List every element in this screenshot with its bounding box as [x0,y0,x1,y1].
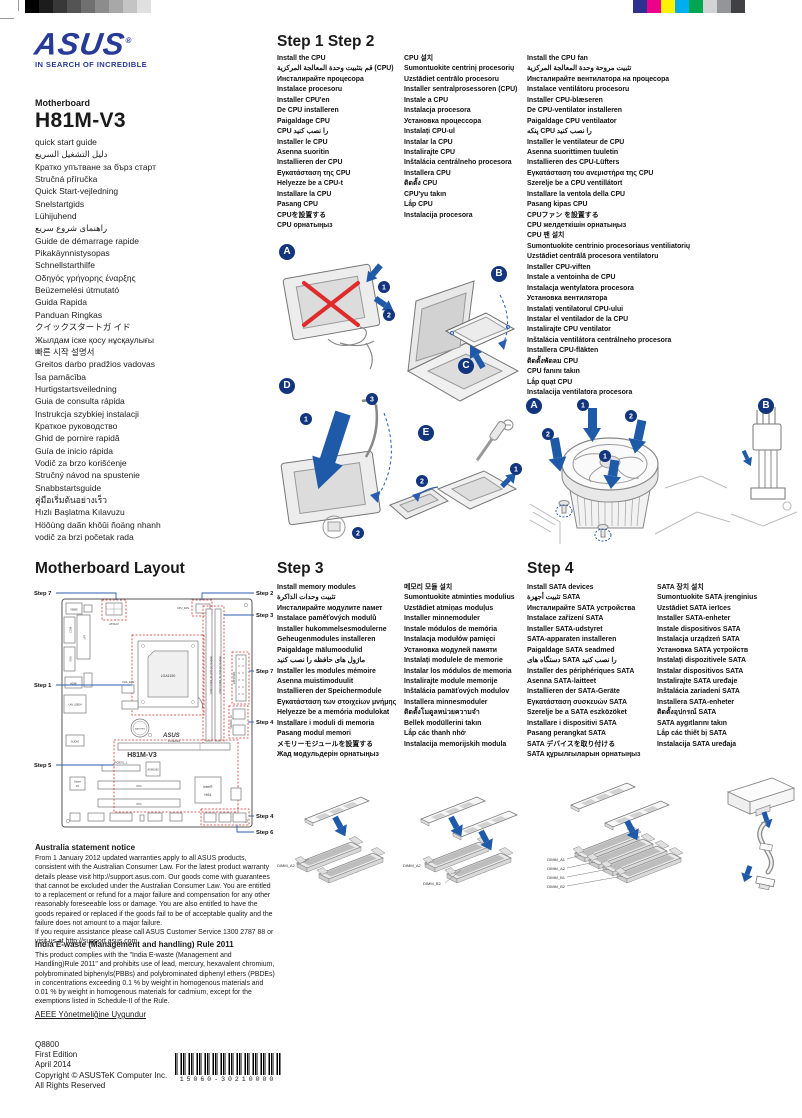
step4-column-1: Install SATA devicesتثبيت أجهزة SATAИнст… [527,583,640,760]
language-title: Hızlı Başlatma Kılavuzu [35,506,161,518]
language-title: Lühijuhend [35,210,161,222]
language-title: 빠른 시작 설명서 [35,346,161,358]
instruction-line: Installer les modules mémoire [277,667,396,677]
instruction-line: Bellek modüllerini takın [404,719,515,729]
instruction-line: Lắp các thanh nhớ [404,729,515,739]
layout-step-label: Step 7 [34,591,51,597]
instruction-line: Installieren der SATA-Geräte [527,687,640,697]
language-title: Vodič za brzo korišćenje [35,457,161,469]
memory-install-diagram: DIMM_A2 DIMM_A2 DIMM_B2 DIMM_A1 DIMM_A2 … [275,775,690,910]
layout-step-label: Step 7 [256,669,273,675]
instruction-line: Install the CPU [277,54,394,64]
step12-title: Step 1 Step 2 [277,33,374,51]
step-number-badge: 1 [300,413,312,425]
step-number-badge: 1 [599,450,611,462]
calibration-swatch [67,0,81,13]
instruction-line: Установка модулей памяти [404,646,515,656]
language-title: Greitos darbo pradžios vadovas [35,358,161,370]
instruction-line: Sumontuokite centrinį procesorių [404,64,517,74]
instruction-line: Instalacja procesora [404,106,517,116]
instruction-line: Installera CPU-fläkten [527,346,690,356]
product-type-label: Motherboard [35,98,90,108]
svg-text:H81M-V3: H81M-V3 [127,752,157,759]
layout-step-label: Step 4 [256,720,274,726]
svg-text:VGA: VGA [69,656,73,662]
instruction-line: CPU орнатыңыз [277,221,394,231]
instruction-line: Pasang perangkat SATA [527,729,640,739]
colophon-line: First Edition [35,1050,167,1060]
calibration-swatch [151,0,165,13]
instruction-line: Uzstādiet atmiņas moduļus [404,604,515,614]
instruction-line: Instalar los módulos de memoria [404,667,515,677]
dimm-label: DIMM_A2 [277,863,296,868]
instruction-line: CPU را نصب کنید [277,127,394,137]
instruction-line: SATA-apparaten installeren [527,635,640,645]
calibration-swatch [633,0,647,13]
instruction-line: Instalirajte module memorije [404,677,515,687]
instruction-line: Installer sentralprosessoren (CPU) [404,85,517,95]
svg-text:EATXPWR: EATXPWR [233,672,236,684]
colophon-line: Q8800 [35,1040,167,1050]
svg-text:2: 2 [356,531,360,538]
instruction-line: Жад модульдерін орнатыңыз [277,750,396,760]
instruction-line: Installare la CPU [277,190,394,200]
instruction-line: Sumontuokite atminties modulius [404,593,515,603]
layout-step-label: Step 3 [256,613,274,619]
step12-fan-column: Install the CPU fanتثبيت مروحة وحدة المع… [527,54,690,398]
calibration-swatch [703,0,717,13]
instruction-line: Helyezze be a CPU-t [277,179,394,189]
language-title: Hurtigstartsveiledning [35,383,161,395]
callout-c: C [458,358,474,374]
instruction-line: Instalar el ventilador de la CPU [527,315,690,325]
instruction-line: Szerelje be a CPU ventillátort [527,179,690,189]
crop-mark-vertical [18,0,19,11]
instruction-line: Instalați ventilatorul CPU-ului [527,305,690,315]
australia-notice-title: Australia statement notice [35,843,275,852]
calibration-swatch [81,0,95,13]
instruction-line: تثبيت أجهزة SATA [527,593,640,603]
calibration-swatch [39,0,53,13]
language-title: Жылдам іске қосу нұсқаулығы [35,334,161,346]
dimm-label: DIMM_A2 [547,866,566,871]
dimm-label: DIMM_A1 [547,857,566,862]
instruction-line: Instalacija memorijskih modula [404,740,515,750]
instruction-line: CPUを設置する [277,211,394,221]
svg-text:LGA1150: LGA1150 [161,674,176,678]
layout-step-label: Step 6 [256,830,274,836]
instruction-line: Установка вентилятора [527,294,690,304]
instruction-line: Instalacja wentylatora procesora [527,284,690,294]
svg-text:ATX12V: ATX12V [109,622,119,626]
step-number-badge: 1 [510,463,522,475]
barcode-digits: 15060-30210000 [175,1076,281,1083]
callout-d: D [279,378,295,394]
india-notice-title: India E-waste (Management and handling) … [35,940,275,949]
instruction-line: Pasang modul memori [277,729,396,739]
svg-text:COM: COM [69,627,73,633]
instruction-line: Instalirajte CPU ventilator [527,325,690,335]
svg-text:1: 1 [603,454,607,461]
instruction-line: CPU желдеткішін орнатыңыз [527,221,690,231]
instruction-line: メモリーモジュールを設置する [277,740,396,750]
dimm-label: DIMM_A2 [403,863,422,868]
instruction-line: Instale módulos de memória [404,625,515,635]
instruction-line: Install memory modules [277,583,396,593]
instruction-line: Installer le ventilateur de CPU [527,138,690,148]
asus-logo: ASUS® IN SEARCH OF INCREDIBLE [35,26,147,69]
calibration-swatch [25,0,39,13]
language-title: Краткое руководство [35,420,161,432]
language-title: Guida Rapida [35,296,161,308]
language-title: Snelstartgids [35,198,161,210]
instruction-line: Instale a CPU [404,96,517,106]
grayscale-calibration-bar [25,0,165,13]
india-notice-body: This product complies with the "India E-… [35,951,275,1007]
registered-mark: ® [125,36,133,45]
brand-tagline: IN SEARCH OF INCREDIBLE [35,60,147,69]
svg-text:SATA6G_12: SATA6G_12 [230,715,233,729]
calibration-swatch [123,0,137,13]
instruction-line: Uzstādiet centrālā procesora ventilatoru [527,252,690,262]
instruction-line: Instalirajte CPU [404,148,517,158]
instruction-line: Инсталирайте процесора [277,75,394,85]
crop-mark-horizontal [0,18,14,19]
svg-text:1: 1 [514,467,518,474]
instruction-line: Sumontuokite centrinio procesoriaus vent… [527,242,690,252]
language-title: vodič za brzi početak rada [35,531,161,543]
calibration-swatch [661,0,675,13]
svg-text:PCIEX16: PCIEX16 [168,739,181,743]
callout-a: A [279,244,295,260]
instruction-line: Installer CPU-viften [527,263,690,273]
instruction-line: Installer minnemoduler [404,614,515,624]
instruction-line: CPU 설치 [404,54,517,64]
instruction-line: Instalar la CPU [404,138,517,148]
instruction-line: Installer CPU-blæseren [527,96,690,106]
instruction-line: Installer hukommelsesmodulerne [277,625,396,635]
dimm-label: DIMM_B2 [547,884,566,889]
calibration-swatch [731,0,745,13]
step4-title: Step 4 [527,560,574,578]
svg-text:LAN_USB34: LAN_USB34 [68,704,82,707]
instruction-line: Lắp các thiết bị SATA [657,729,757,739]
language-title: Snabbstartsguide [35,482,161,494]
svg-text:2: 2 [629,414,633,421]
asus-wordmark: ASUS® [33,26,150,59]
instruction-line: Installare i dispositivi SATA [527,719,640,729]
instruction-line: Inštalácia pamäťových modulov [404,687,515,697]
language-title: Quick Start-vejledning [35,185,161,197]
instruction-line: Helyezze be a memória modulokat [277,708,396,718]
instruction-line: SATA құрылғыларын орнатыңыз [527,750,640,760]
svg-text:H81: H81 [204,792,212,797]
step3-column-1: Install memory modulesتثبيت وحدات الذاكر… [277,583,396,760]
instruction-line: Uzstādiet SATA ierīces [657,604,757,614]
dimm-label: DIMM_B2 [423,881,442,886]
language-title: Schnellstarthilfe [35,259,161,271]
calibration-swatch [689,0,703,13]
step-number-badge: 2 [625,410,637,422]
instruction-line: Install SATA devices [527,583,640,593]
step-number-badge: 2 [416,475,428,487]
instruction-line: Inštalácia zariadení SATA [657,687,757,697]
instruction-line: Asenna suorittimen tuuletin [527,148,690,158]
instruction-line: Paigaldage mälumoodulid [277,646,396,656]
language-title: Ghid de pornire rapidă [35,432,161,444]
australia-notice: Australia statement notice From 1 Januar… [35,843,275,947]
svg-text:AUDIO: AUDIO [71,740,79,744]
language-title: Īsa pamācība [35,371,161,383]
colophon-line: April 2014 [35,1060,167,1070]
instruction-line: Instalacja modułów pamięci [404,635,515,645]
instruction-line: Installer le CPU [277,138,394,148]
instruction-line: Instalace zařízení SATA [527,614,640,624]
svg-text:2: 2 [420,479,424,486]
instruction-line: Installera minnesmoduler [404,698,515,708]
model-name: H81M-V3 [35,109,126,133]
instruction-line: Pasang kipas CPU [527,200,690,210]
language-title: คู่มือเริ่มต้นอย่างเร็ว [35,494,161,506]
step-number-badge: 1 [378,281,390,293]
instruction-line: Install the CPU fan [527,54,690,64]
calibration-swatch [675,0,689,13]
language-title: Pikakäynnistysopas [35,247,161,259]
step12-cpu-column-2: CPU 설치Sumontuokite centrinį procesoriųUz… [404,54,517,221]
instruction-line: Instalace procesoru [277,85,394,95]
instruction-line: 메모리 모듈 설치 [404,583,515,593]
svg-text:DDR3 DIMM_B1 (240-pin module): DDR3 DIMM_B1 (240-pin module) [219,656,222,694]
callout-e: E [418,425,434,441]
instruction-line: Installer SATA-enheter [657,614,757,624]
language-title: Panduan Ringkas [35,309,161,321]
fan-callout-b: B [758,398,774,414]
instruction-line: Installera CPU [404,169,517,179]
instruction-line: De CPU-ventilator installeren [527,106,690,116]
instruction-line: Instalacija procesora [404,211,517,221]
language-title: クイックスタートガ イド [35,321,161,333]
instruction-line: De CPU installeren [277,106,394,116]
language-title: Guia de consulta rápida [35,395,161,407]
cpu-fan-diagram: 1 2 2 1 [525,392,802,552]
instruction-line: CPU 팬 설치 [527,231,690,241]
step-number-badge: 2 [383,309,395,321]
language-title: Кратко упътване за бърз старт [35,161,161,173]
instruction-line: Instalacija SATA uređaja [657,740,757,750]
svg-text:1: 1 [304,417,308,424]
instruction-line: Installare la ventola della CPU [527,190,690,200]
colophon: Q8800First EditionApril 2014Copyright © … [35,1040,167,1091]
svg-text:DDR3 DIMM_A1 (240-pin module): DDR3 DIMM_A1 (240-pin module) [210,656,213,694]
svg-text:LPT: LPT [83,634,87,639]
svg-text:1: 1 [382,285,386,292]
instruction-line: Pasang CPU [277,200,394,210]
instruction-line: Installer CPU'en [277,96,394,106]
instruction-line: Inštalácia centrálneho procesora [404,158,517,168]
instruction-line: ติดตั้งโมดูลหน่วยความจำ [404,708,515,718]
instruction-line: Εγκατάσταση των στοιχείων μνήμης [277,698,396,708]
language-title: Guide de démarrage rapide [35,235,161,247]
fan-callout-a: A [526,398,542,414]
layout-step-label: Step 1 [34,683,52,689]
sata-install-diagram [720,770,802,910]
step-number-badge: 3 [366,393,378,405]
instruction-line: Instalirajte SATA uređaje [657,677,757,687]
instruction-line: CPUファン を設置する [527,211,690,221]
instruction-line: ติดตั้ง CPU [404,179,517,189]
instruction-line: Asenna muistimoduulit [277,677,396,687]
step4-column-2: SATA 장치 설치Sumontuokite SATA įrenginiusUz… [657,583,757,750]
svg-text:3: 3 [370,397,374,404]
calibration-swatch [109,0,123,13]
instruction-line: Paigaldage CPU ventilaator [527,117,690,127]
instruction-line: ماژول های حافظه را نصب کنید [277,656,396,666]
manual-page: { "brand": {"name": "ASUS", "reg": "®", … [0,0,802,1118]
instruction-line: دستگاه های SATA را نصب کنید [527,656,640,666]
step12-cpu-column-1: Install the CPUقم بتثبيت وحدة المعالجة ا… [277,54,394,231]
layout-step-label: Step 2 [256,591,273,597]
instruction-line: SATA aygıtlarını takın [657,719,757,729]
india-ewaste-notice: India E-waste (Management and handling) … [35,940,275,1007]
instruction-line: Εγκατάσταση της CPU [277,169,394,179]
instruction-line: Szerelje be a SATA eszközöket [527,708,640,718]
svg-text:Intel®: Intel® [203,785,213,789]
language-title: دليل التشغيل السريع [35,148,161,160]
instruction-line: Installieren des CPU-Lüfters [527,158,690,168]
dimm-label: DIMM_B1 [547,875,566,880]
instruction-line: SATA 장치 설치 [657,583,757,593]
svg-text:CPU_FAN: CPU_FAN [177,606,189,610]
svg-text:PCIEX1_1: PCIEX1_1 [114,761,128,765]
instruction-line: Установка процессора [404,117,517,127]
layout-step-label: Step 5 [34,763,52,769]
instruction-line: Paigaldage SATA seadmed [527,646,640,656]
instruction-line: Lắp quạt CPU [527,378,690,388]
aeee-compliance-line: AEEE Yönetmeliğine Uygundur [35,1010,146,1019]
instruction-line: Installer SATA-udstyret [527,625,640,635]
instruction-line: قم بتثبيت وحدة المعالجة المركزية (CPU) [277,64,394,74]
svg-text:1: 1 [581,403,585,410]
calibration-swatch [53,0,67,13]
calibration-swatch [717,0,731,13]
instruction-line: SATA デバイスを取り付ける [527,740,640,750]
instruction-line: Inštalácia ventilátora centrálneho proce… [527,336,690,346]
instruction-line: Установка SATA устройств [657,646,757,656]
motherboard-layout-diagram: KBMS COM LPT VGA HDMI LAN_USB34 AUDIO AT… [30,585,280,850]
color-calibration-bar [633,0,745,13]
step3-title: Step 3 [277,560,324,578]
language-title: Höôùng daãn khôûi ñoäng nhanh [35,519,161,531]
language-title: راهنمای شروع سریع [35,222,161,234]
instruction-line: Instale dispositivos SATA [657,625,757,635]
instruction-line: ติดตั้งพัดลม CPU [527,357,690,367]
language-title: Stručný návod na spustenie [35,469,161,481]
instruction-line: Instalace paměťových modulů [277,614,396,624]
instruction-line: Geheugenmodules installeren [277,635,396,645]
step-number-badge: 1 [577,399,589,411]
instruction-line: Instalați modulele de memorie [404,656,515,666]
svg-text:CHA_FAN: CHA_FAN [122,680,134,684]
instruction-line: Uzstādiet centrālo procesoru [404,75,517,85]
svg-text:2: 2 [546,432,550,439]
instruction-line: CPU fanını takın [527,367,690,377]
instruction-line: پنکه CPU را نصب کنید [527,127,690,137]
step-number-badge: 2 [542,428,554,440]
instruction-line: Instalacja urządzeń SATA [657,635,757,645]
instruction-line: Asenna suoritin [277,148,394,158]
instruction-line: Instale a ventoinha de CPU [527,273,690,283]
language-title: Beüzemelési útmutató [35,284,161,296]
instruction-line: CPU'yu takın [404,190,517,200]
barcode: 15060-30210000 [175,1053,281,1083]
svg-text:PCI: PCI [136,802,141,806]
instruction-line: Installare i moduli di memoria [277,719,396,729]
step-number-badge: 2 [352,527,364,539]
calibration-swatch [95,0,109,13]
instruction-line: ติดตั้งอุปกรณ์ SATA [657,708,757,718]
cpu-install-diagram: 1 2 3 1 2 2 1 [270,243,522,551]
instruction-line: Инсталирайте SATA устройства [527,604,640,614]
colophon-line: Copyright © ASUSTeK Computer Inc. [35,1071,167,1081]
language-title: Οδηγός γρήγορης έναρξης [35,272,161,284]
instruction-line: Εγκατάσταση συσκευών SATA [527,698,640,708]
instruction-line: Installer des périphériques SATA [527,667,640,677]
step3-column-2: 메모리 모듈 설치Sumontuokite atminties modulius… [404,583,515,750]
instruction-line: Installieren der Speichermodule [277,687,396,697]
instruction-line: Lắp CPU [404,200,517,210]
language-title-list: quick start guideدليل التشغيل السريعКрат… [35,136,161,543]
instruction-line: Инсталирайте модулите памет [277,604,396,614]
layout-title: Motherboard Layout [35,560,185,578]
instruction-line: تثبيت وحدات الذاكرة [277,593,396,603]
calibration-swatch [647,0,661,13]
barcode-bars [175,1053,281,1075]
language-title: quick start guide [35,136,161,148]
instruction-line: Sumontuokite SATA įrenginius [657,593,757,603]
instruction-line: Инсталирайте вентилатора на процесора [527,75,690,85]
instruction-line: Installieren der CPU [277,158,394,168]
instruction-line: Instalați dispozitivele SATA [657,656,757,666]
instruction-line: Instalace ventilátoru procesoru [527,85,690,95]
instruction-line: Installera SATA-enheter [657,698,757,708]
language-title: Stručná příručka [35,173,161,185]
svg-text:ASM1083: ASM1083 [148,769,160,772]
svg-text:Super: Super [74,780,81,784]
svg-text:BATTERY: BATTERY [135,728,145,731]
layout-step-label: Step 4 [256,814,274,820]
svg-text:KBMS: KBMS [70,608,78,612]
callout-b: B [491,266,507,282]
australia-notice-body: From 1 January 2012 updated warranties a… [35,854,275,928]
svg-text:PCI: PCI [136,784,141,788]
instruction-line: تثبيت مروحة وحدة المعالجة المركزية [527,64,690,74]
svg-text:2: 2 [387,313,391,320]
instruction-line: Εγκατάσταση του ανεμιστήρα της CPU [527,169,690,179]
calibration-swatch [137,0,151,13]
instruction-line: Asenna SATA-laitteet [527,677,640,687]
language-title: Instrukcja szybkiej instalacji [35,408,161,420]
colophon-line: All Rights Reserved [35,1081,167,1091]
language-title: Guía de inicio rápida [35,445,161,457]
instruction-line: Paigaldage CPU [277,117,394,127]
instruction-line: Instalați CPU-ul [404,127,517,137]
instruction-line: Instalar dispositivos SATA [657,667,757,677]
svg-text:I/O: I/O [76,784,79,788]
